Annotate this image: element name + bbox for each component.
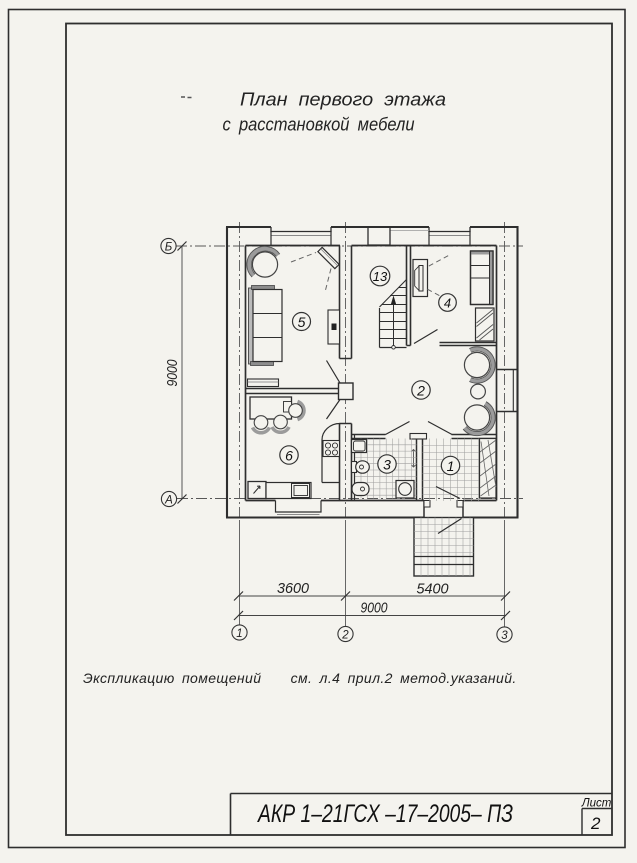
svg-text:6: 6 xyxy=(285,448,293,464)
svg-text:3: 3 xyxy=(501,630,508,642)
svg-text:3: 3 xyxy=(383,457,391,473)
svg-text:2: 2 xyxy=(341,630,349,642)
svg-text:План первого этажа: План первого этажа xyxy=(240,90,446,110)
svg-text:4: 4 xyxy=(444,296,451,311)
svg-text:13: 13 xyxy=(373,269,388,284)
svg-text:3600: 3600 xyxy=(277,580,310,597)
svg-text:1: 1 xyxy=(236,628,242,640)
svg-text:5400: 5400 xyxy=(417,581,450,598)
svg-text:2: 2 xyxy=(416,383,425,399)
svg-text:9000: 9000 xyxy=(164,359,181,387)
svg-text:с расстановкой мебели: с расстановкой мебели xyxy=(223,115,415,135)
svg-text:9000: 9000 xyxy=(361,600,389,617)
svg-text:1: 1 xyxy=(447,458,455,474)
svg-text:Лист: Лист xyxy=(581,798,612,810)
svg-text:2: 2 xyxy=(590,814,601,833)
svg-text:АКР 1–21ГСХ –17–2005– ПЗ: АКР 1–21ГСХ –17–2005– ПЗ xyxy=(256,800,513,828)
svg-text:5: 5 xyxy=(298,314,306,330)
svg-text:Экспликацию помещений см. л: Экспликацию помещений см. л.4 прил.2 мет… xyxy=(83,670,517,686)
svg-text:А: А xyxy=(164,495,173,507)
svg-text:Б: Б xyxy=(165,242,173,254)
